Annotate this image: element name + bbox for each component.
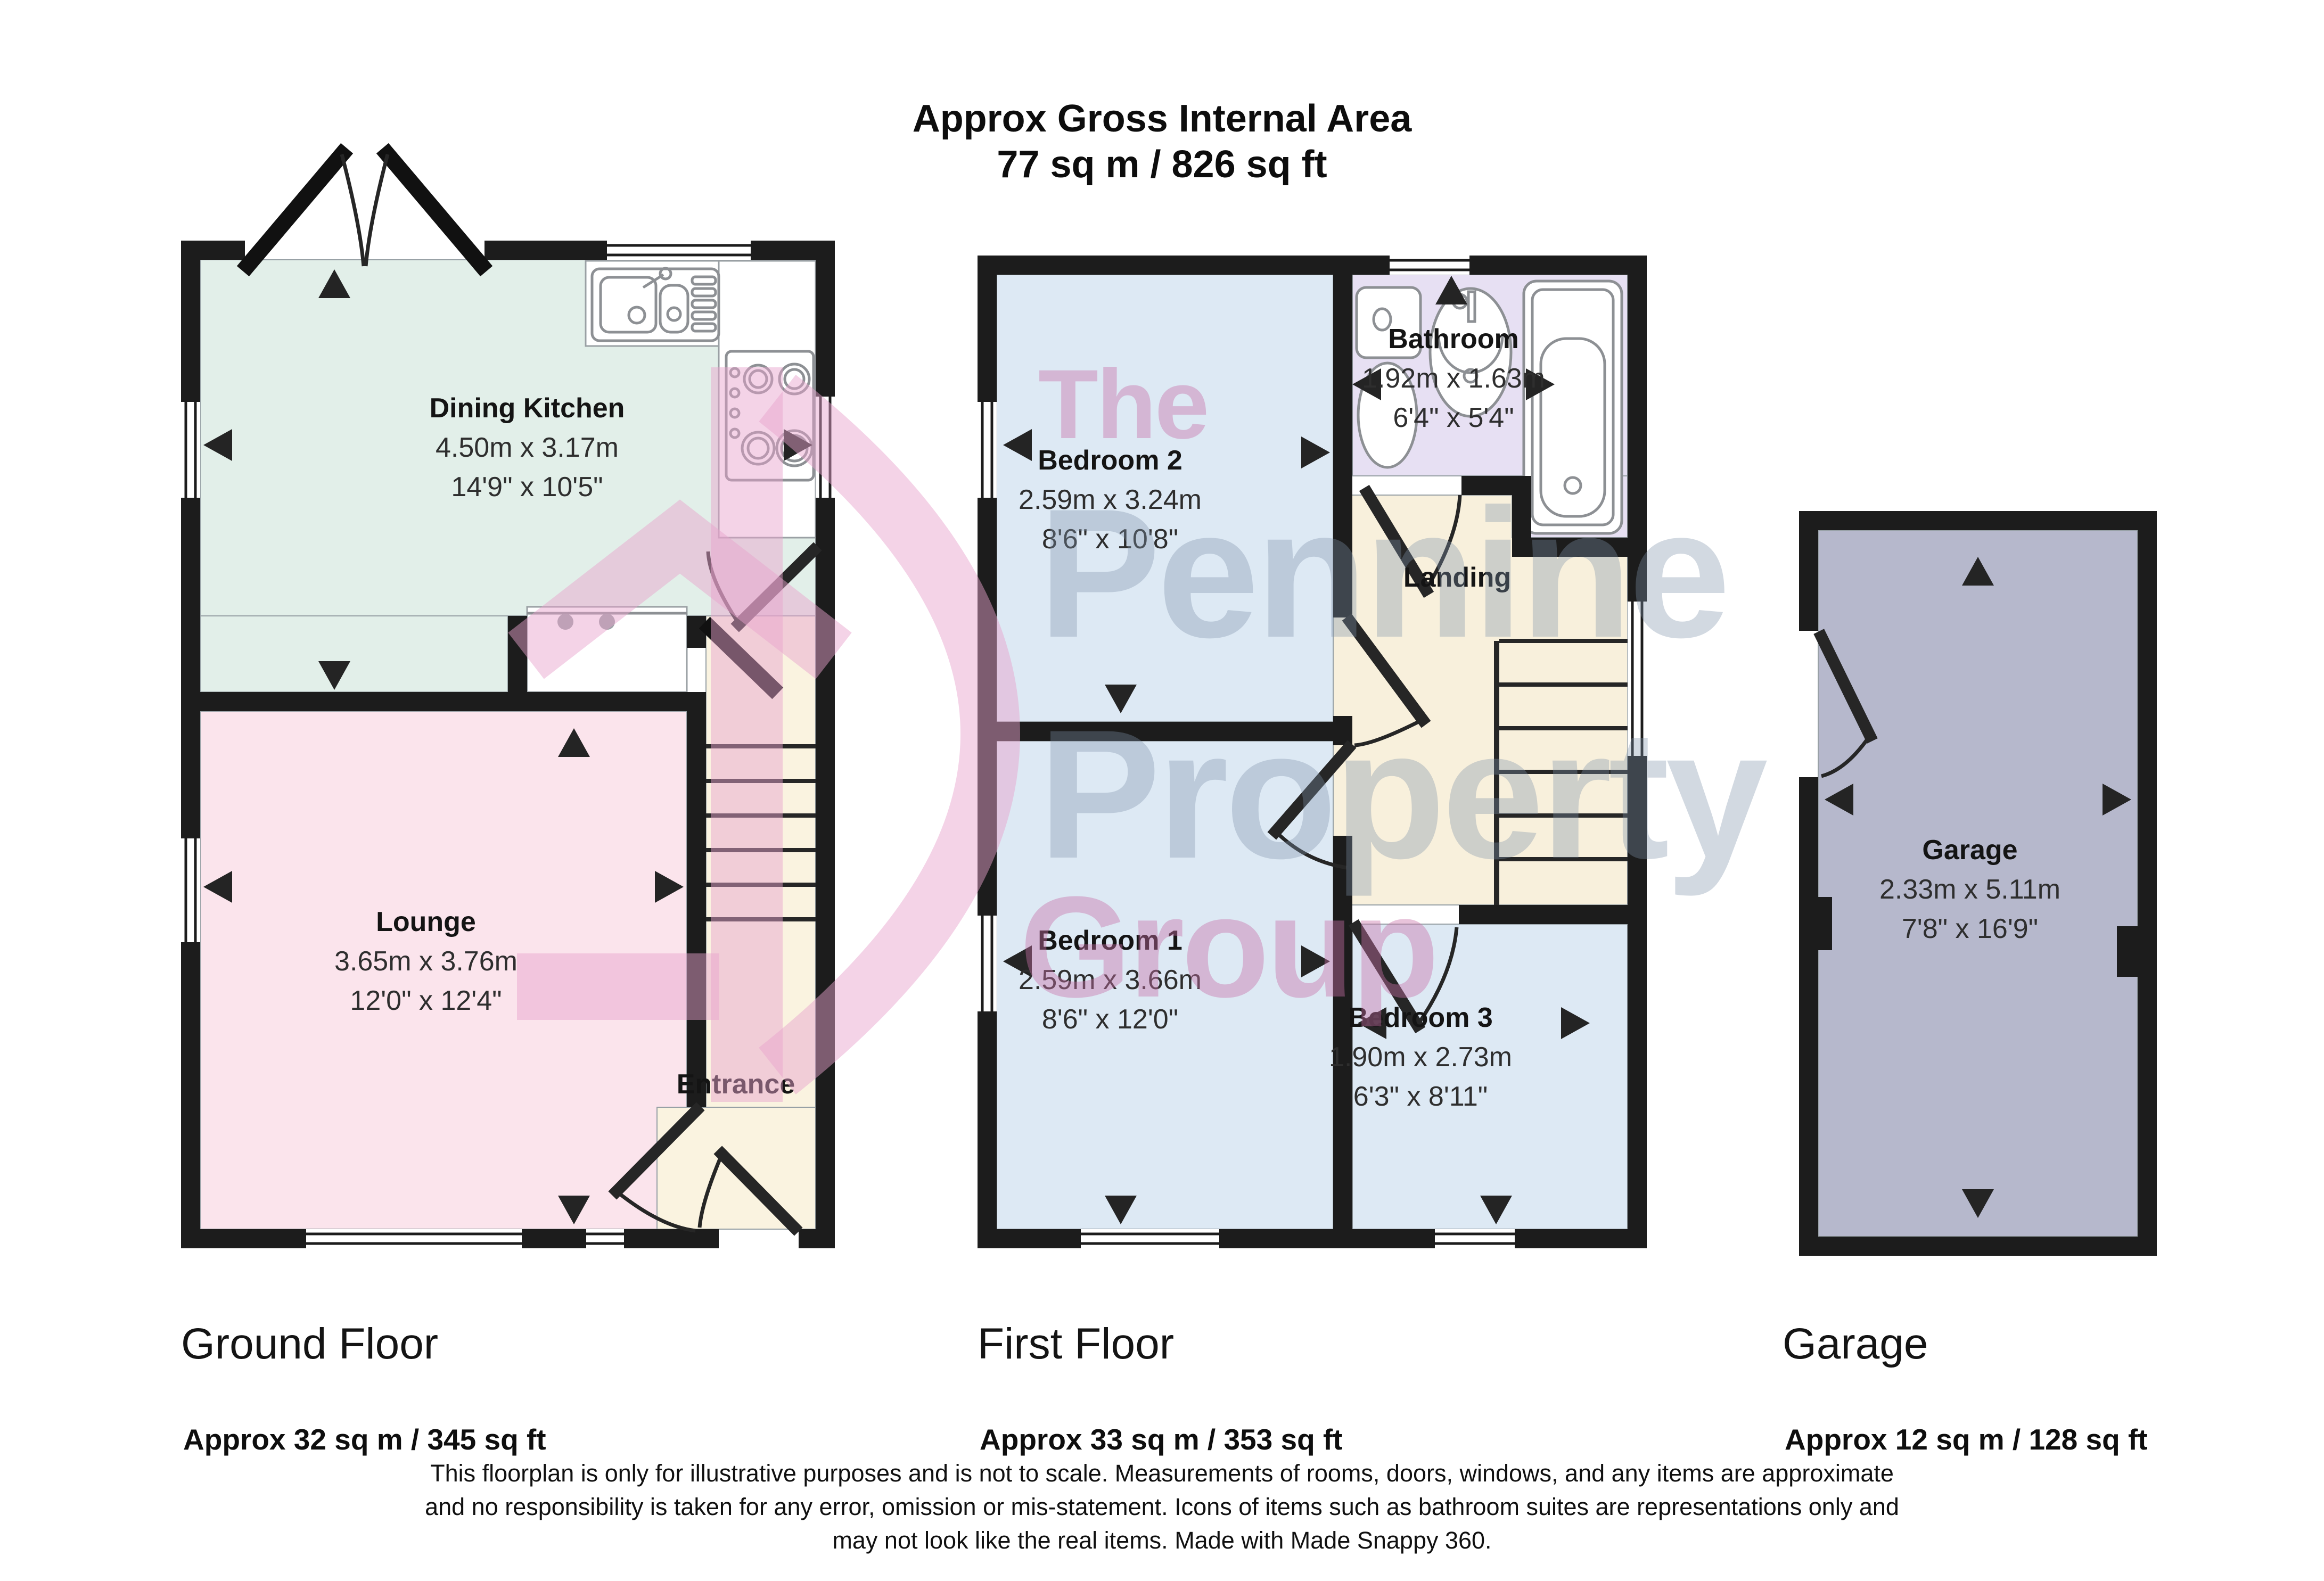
appliance-icon — [527, 607, 687, 692]
hob-icon — [726, 351, 814, 480]
sink-icon — [592, 268, 719, 341]
floor-label-ground: Ground Floor — [181, 1319, 438, 1369]
floor-area-first: Approx 33 sq m / 353 sq ft — [980, 1422, 1343, 1456]
watermark-word-property: Property — [1038, 703, 1764, 886]
floor-label-garage: Garage — [1783, 1319, 1928, 1369]
floor-label-first: First Floor — [978, 1319, 1174, 1369]
watermark-word-the: The — [1038, 356, 1208, 454]
room-label-lounge: Lounge 3.65m x 3.76m 12'0" x 12'4" — [334, 902, 518, 1020]
floorplan-page: Approx Gross Internal Area 77 sq m / 826… — [0, 0, 2324, 1581]
floor-area-garage: Approx 12 sq m / 128 sq ft — [1785, 1422, 2148, 1456]
floor-area-ground: Approx 32 sq m / 345 sq ft — [183, 1422, 546, 1456]
watermark-word-pennine: Pennine — [1038, 482, 1727, 665]
disclaimer-line3: may not look like the real items. Made w… — [0, 1527, 2324, 1554]
disclaimer-line1: This floorplan is only for illustrative … — [0, 1460, 2324, 1487]
disclaimer-line2: and no responsibility is taken for any e… — [0, 1493, 2324, 1521]
room-label-dining-kitchen: Dining Kitchen 4.50m x 3.17m 14'9" x 10'… — [430, 389, 625, 507]
room-label-entrance: Entrance — [677, 1065, 795, 1104]
room-label-garage: Garage 2.33m x 5.11m 7'8" x 16'9" — [1879, 830, 2060, 949]
page-title-line1: Approx Gross Internal Area — [0, 97, 2324, 141]
page-title-line2: 77 sq m / 826 sq ft — [0, 143, 2324, 186]
room-label-bathroom: Bathroom 1.92m x 1.63m 6'4" x 5'4" — [1362, 319, 1545, 438]
room-dining-kitchen-ext — [200, 616, 508, 692]
watermark-word-group: Group — [1020, 876, 1436, 1019]
